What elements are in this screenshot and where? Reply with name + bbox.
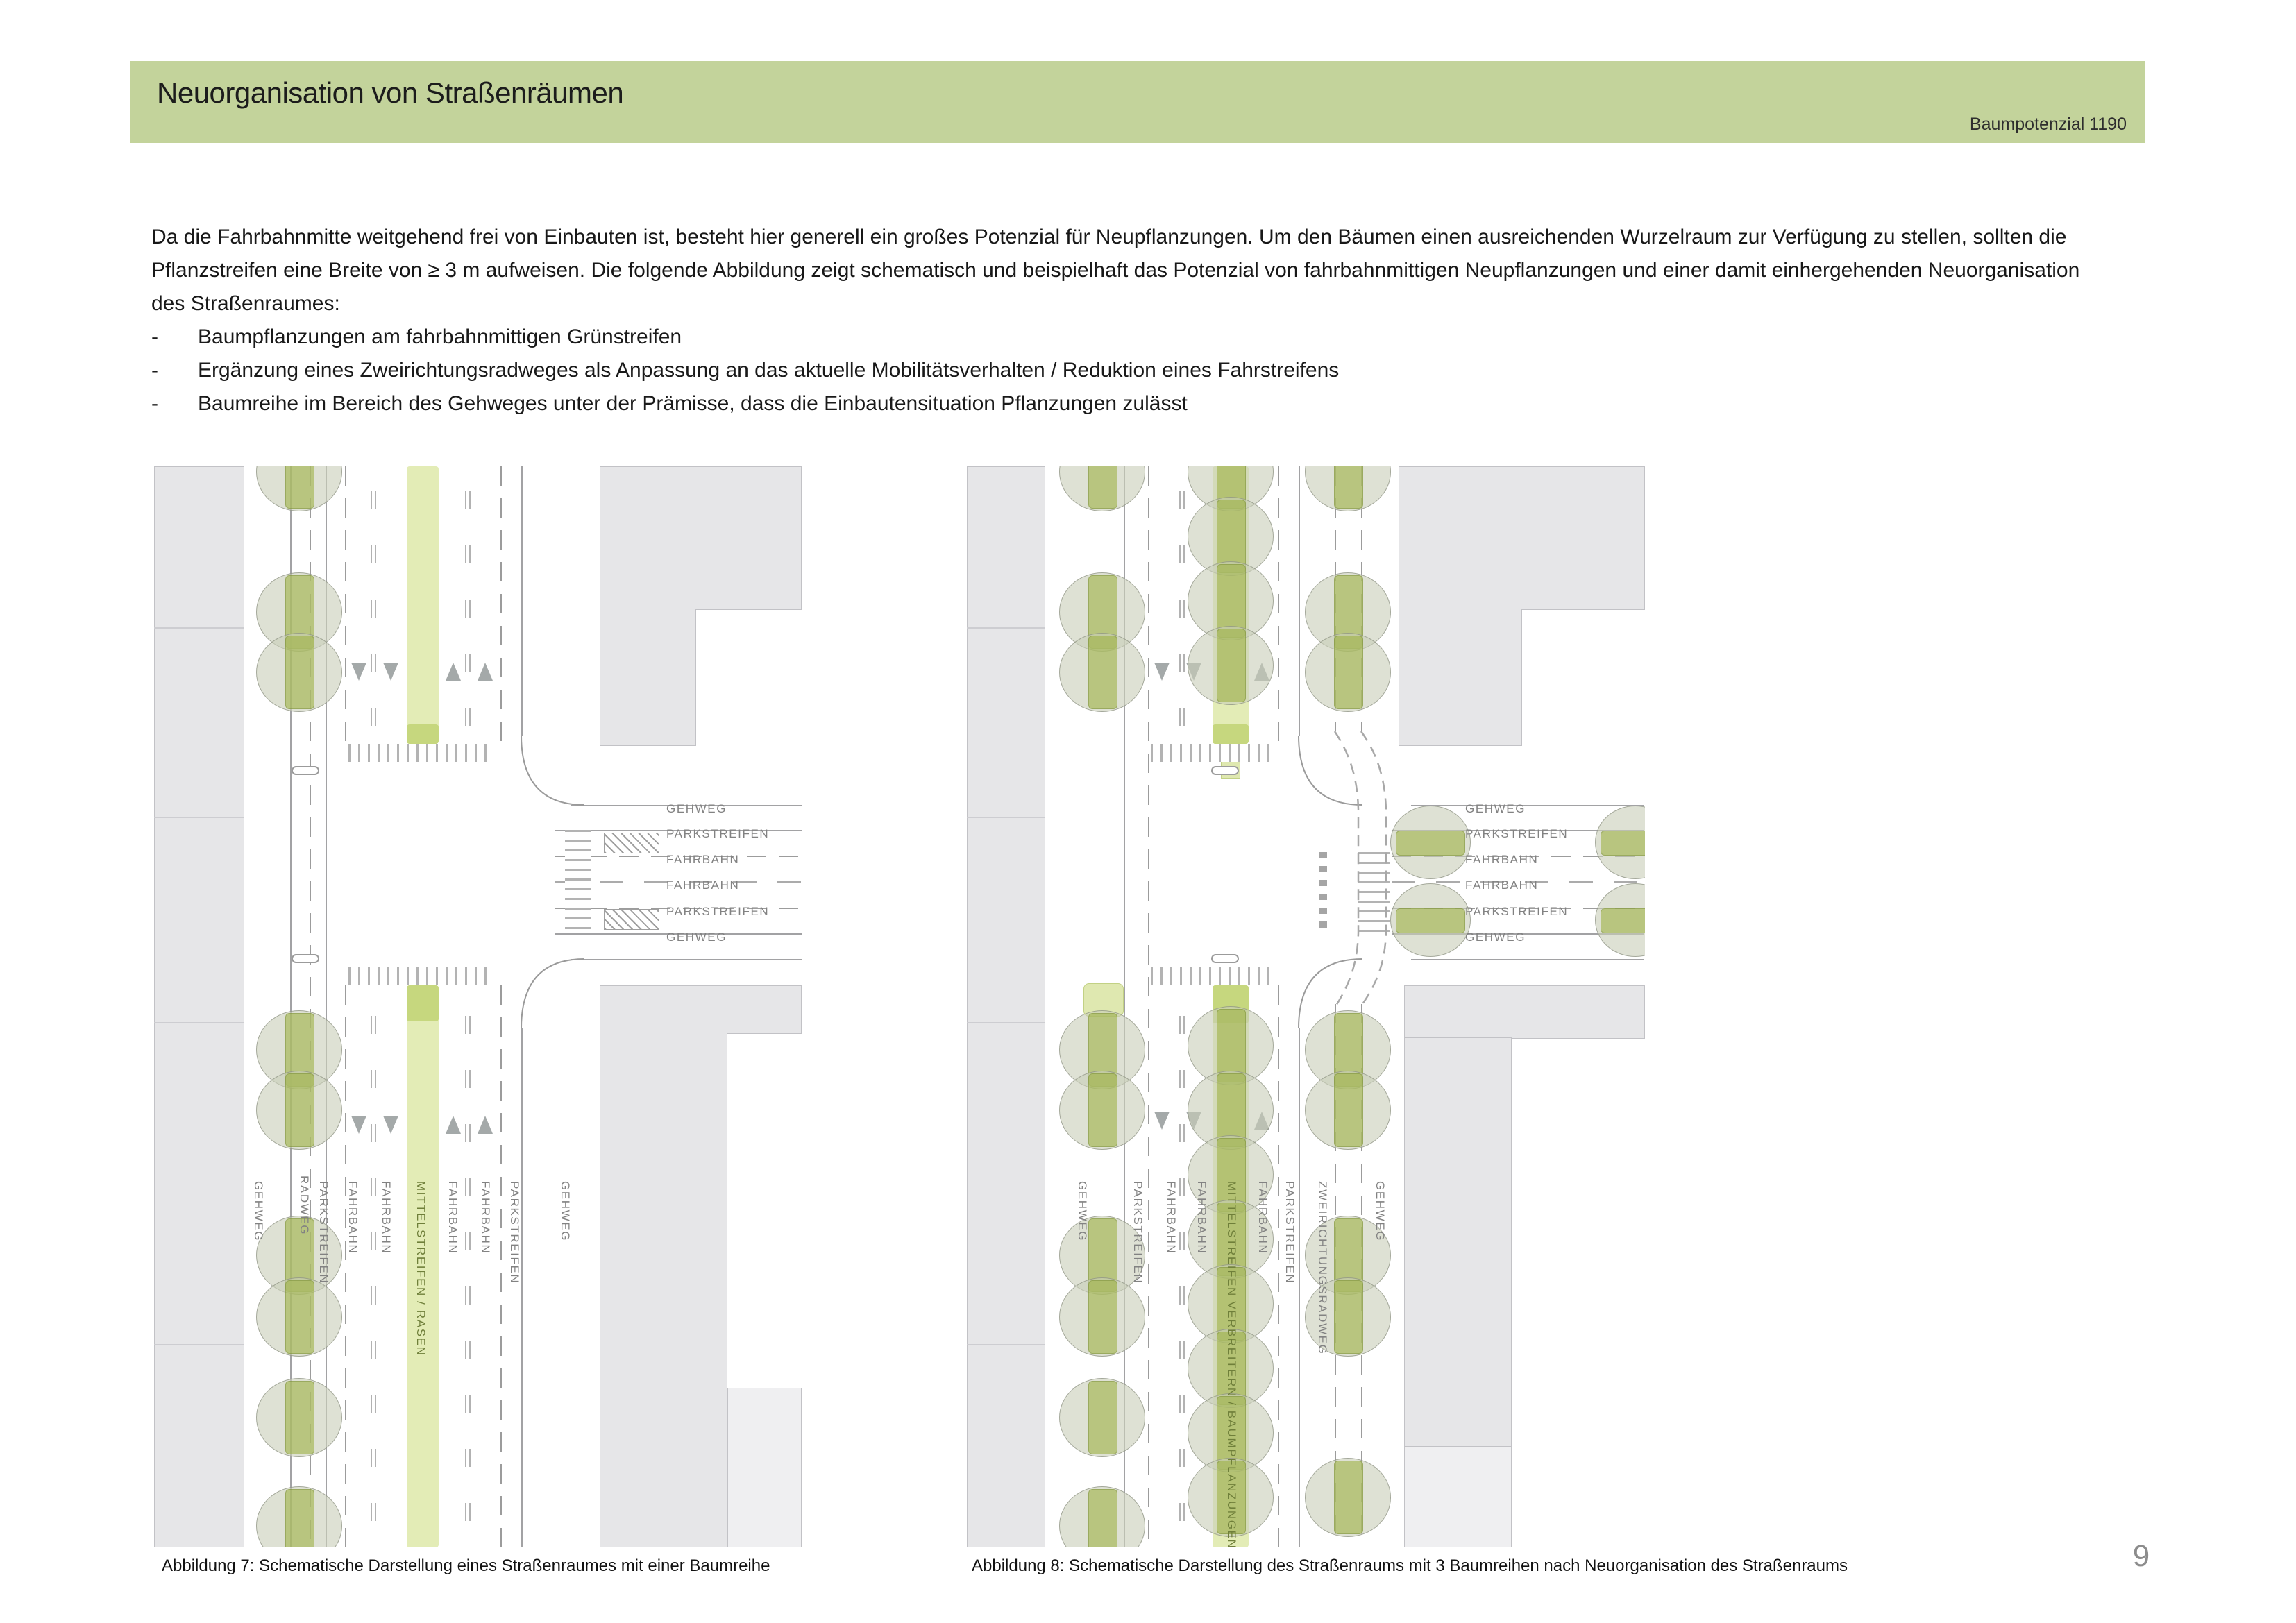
- page-number: 9: [2110, 1539, 2172, 1574]
- cross-lane-label: PARKSTREIFEN: [666, 905, 769, 919]
- header-bar: Neuorganisation von Straßenräumen Baumpo…: [130, 61, 2145, 143]
- list-item: - Ergänzung eines Zweirichtungsradweges …: [151, 354, 2095, 387]
- list-item: - Baumpflanzungen am fahrbahnmittigen Gr…: [151, 321, 2095, 354]
- cross-lane-label: PARKSTREIFEN: [1465, 827, 1568, 841]
- tree-symbol: [1059, 633, 1145, 712]
- cross-lane-label: GEHWEG: [666, 931, 727, 944]
- lane-label: FAHRBAHN: [379, 1181, 393, 1254]
- tree-symbol: [1059, 1277, 1145, 1357]
- tree-symbol: [256, 633, 342, 712]
- header-right-label: Baumpotenzial 1190: [1970, 114, 2127, 135]
- cross-lane-label: GEHWEG: [1465, 802, 1526, 816]
- figure-8-caption: Abbildung 8: Schematische Darstellung de…: [972, 1556, 1848, 1576]
- lane-label: PARKSTREIFEN: [1283, 1181, 1297, 1284]
- bullet-list: - Baumpflanzungen am fahrbahnmittigen Gr…: [151, 321, 2095, 420]
- tree-symbol: [256, 466, 342, 511]
- tree-symbol: [1305, 1458, 1391, 1537]
- figure-8-diagram: GEHWEG PARKSTREIFEN FAHRBAHN FAHRBAHN MI…: [967, 466, 1645, 1547]
- bullet-dash: -: [151, 387, 198, 420]
- lane-label: RADWEG: [297, 1175, 311, 1235]
- tree-symbol: [1305, 466, 1391, 511]
- cross-lane-label: GEHWEG: [1465, 931, 1526, 944]
- tree-symbol: [1595, 883, 1645, 957]
- tree-symbol: [1188, 626, 1274, 705]
- tree-symbol: [1390, 883, 1471, 957]
- curb-curves-svg: [154, 466, 802, 1547]
- lane-label: GEHWEG: [1373, 1181, 1387, 1241]
- lane-label: FAHRBAHN: [446, 1181, 459, 1254]
- tree-symbol: [1595, 806, 1645, 879]
- tree-symbol: [1059, 1378, 1145, 1457]
- cross-lane-label: FAHRBAHN: [1465, 853, 1538, 867]
- tree-symbol: [1059, 1071, 1145, 1150]
- list-item: - Baumreihe im Bereich des Gehweges unte…: [151, 387, 2095, 420]
- lane-label: FAHRBAHN: [1164, 1181, 1178, 1254]
- bullet-dash: -: [151, 321, 198, 354]
- cross-lane-label: FAHRBAHN: [666, 878, 739, 892]
- lane-label: PARKSTREIFEN: [316, 1181, 330, 1284]
- bullet-text: Ergänzung eines Zweirichtungsradweges al…: [198, 354, 1339, 387]
- report-page: { "header": { "title": "Neuorganisation …: [0, 0, 2296, 1623]
- lane-label: MITTELSTREIFEN / RASEN: [414, 1181, 428, 1356]
- tree-symbol: [256, 1071, 342, 1150]
- lane-label: GEHWEG: [558, 1181, 572, 1241]
- lane-label: FAHRBAHN: [1256, 1181, 1269, 1254]
- tree-symbol: [256, 1277, 342, 1357]
- cross-lane-label: FAHRBAHN: [1465, 878, 1538, 892]
- cross-lane-label: FAHRBAHN: [666, 853, 739, 867]
- lane-label: FAHRBAHN: [346, 1181, 360, 1254]
- cross-lane-label: GEHWEG: [666, 802, 727, 816]
- lane-label: PARKSTREIFEN: [1131, 1181, 1145, 1284]
- lane-label: GEHWEG: [251, 1181, 265, 1241]
- page-title: Neuorganisation von Straßenräumen: [157, 76, 623, 110]
- tree-symbol: [256, 1378, 342, 1457]
- figure-7-diagram: GEHWEG RADWEG PARKSTREIFEN FAHRBAHN FAHR…: [154, 466, 802, 1547]
- cross-lane-label: PARKSTREIFEN: [666, 827, 769, 841]
- tree-symbol: [1059, 466, 1145, 511]
- tree-symbol: [1305, 1071, 1391, 1150]
- lane-label: MITTELSTREIFEN VERBREITERN / BAUMPFLANZU…: [1224, 1181, 1238, 1547]
- tree-symbol: [1059, 1486, 1145, 1547]
- cross-lane-label: PARKSTREIFEN: [1465, 905, 1568, 919]
- lane-label: ZWEIRICHTUNGSRADWEG: [1315, 1181, 1329, 1354]
- lane-label: PARKSTREIFEN: [507, 1181, 521, 1284]
- lane-label: FAHRBAHN: [478, 1181, 492, 1254]
- tree-symbol: [1305, 633, 1391, 712]
- intro-paragraph: Da die Fahrbahnmitte weitgehend frei von…: [151, 221, 2095, 321]
- lane-label: GEHWEG: [1075, 1181, 1089, 1241]
- bullet-text: Baumreihe im Bereich des Gehweges unter …: [198, 387, 1188, 420]
- lane-label: FAHRBAHN: [1195, 1181, 1208, 1254]
- tree-symbol: [1390, 806, 1471, 879]
- figure-7-caption: Abbildung 7: Schematische Darstellung ei…: [162, 1556, 770, 1576]
- bullet-text: Baumpflanzungen am fahrbahnmittigen Grün…: [198, 321, 682, 354]
- tree-symbol: [256, 1486, 342, 1547]
- bullet-dash: -: [151, 354, 198, 387]
